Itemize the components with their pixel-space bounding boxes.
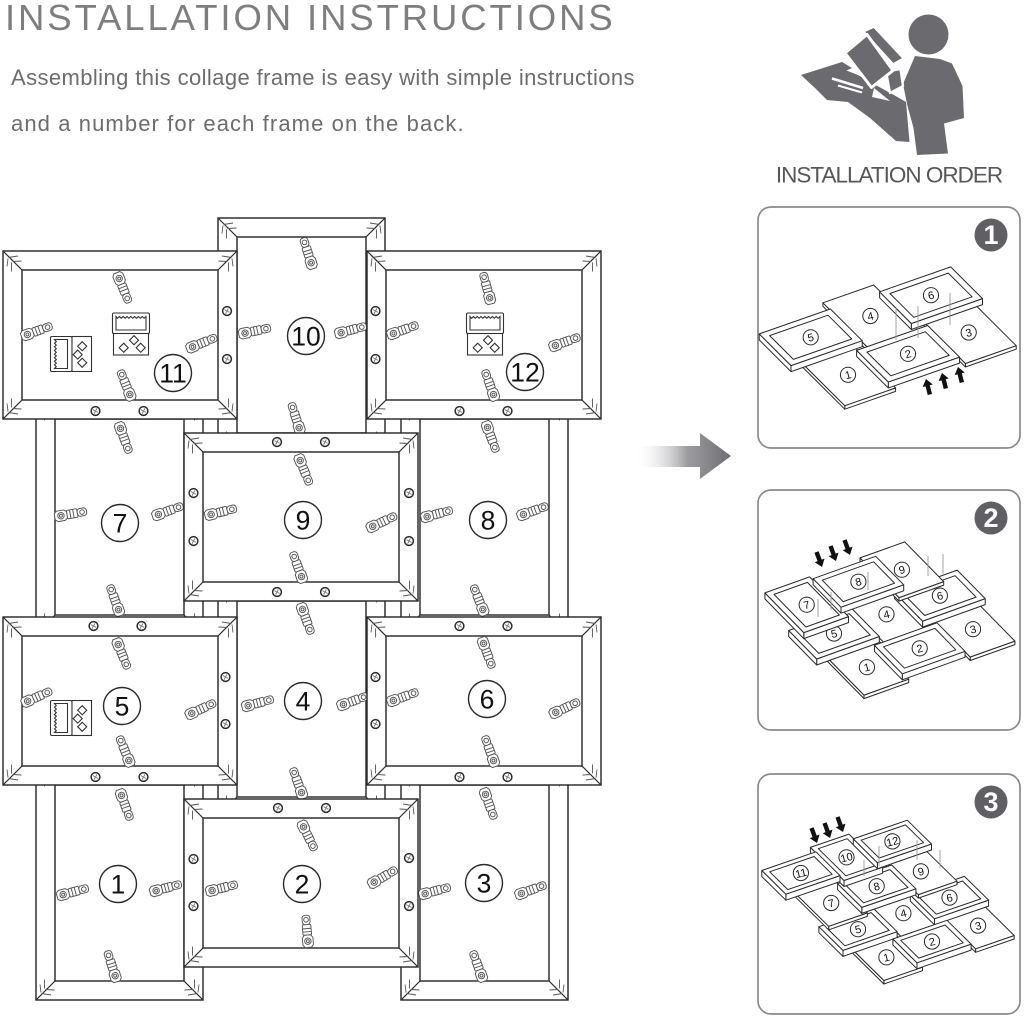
svg-text:2: 2 — [983, 503, 998, 533]
svg-text:12: 12 — [510, 358, 539, 388]
svg-text:11: 11 — [159, 359, 187, 389]
svg-text:2: 2 — [295, 870, 310, 900]
svg-text:3: 3 — [477, 869, 492, 899]
svg-text:7: 7 — [113, 509, 128, 539]
svg-text:9: 9 — [296, 506, 311, 536]
svg-text:3: 3 — [983, 787, 998, 817]
svg-text:Assembling this collage frame: Assembling this collage frame is easy wi… — [11, 65, 635, 90]
svg-text:and a number for each frame on: and a number for each frame on the back. — [11, 111, 465, 136]
svg-text:INSTALLATION ORDER: INSTALLATION ORDER — [776, 163, 1003, 188]
svg-text:INSTALLATION INSTRUCTIONS: INSTALLATION INSTRUCTIONS — [5, 0, 616, 38]
svg-text:6: 6 — [480, 685, 495, 715]
svg-text:1: 1 — [111, 870, 126, 900]
svg-text:1: 1 — [983, 220, 998, 250]
svg-text:10: 10 — [291, 322, 320, 352]
svg-text:5: 5 — [115, 692, 130, 722]
svg-text:4: 4 — [296, 687, 311, 717]
svg-text:8: 8 — [481, 506, 496, 536]
